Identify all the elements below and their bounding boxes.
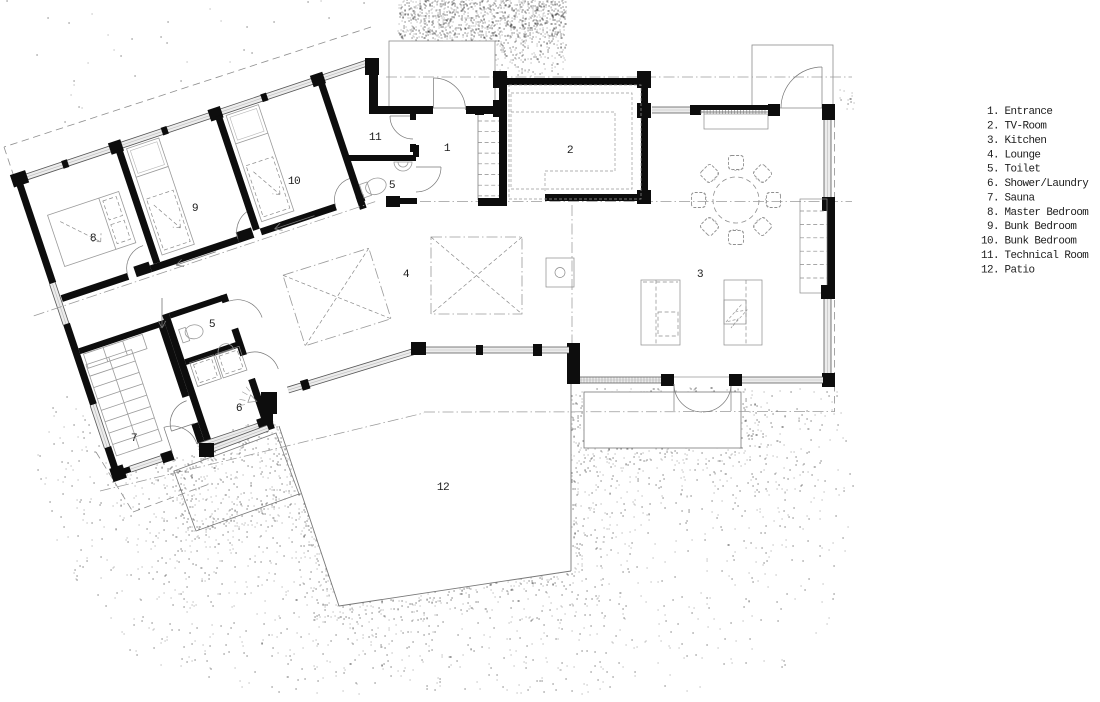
svg-text:Kitchen: Kitchen bbox=[1005, 135, 1047, 147]
svg-text:6: 6 bbox=[236, 403, 242, 415]
svg-text:Master Bedroom: Master Bedroom bbox=[1005, 207, 1089, 219]
svg-text:3: 3 bbox=[697, 269, 703, 281]
svg-text:Entrance: Entrance bbox=[1005, 106, 1053, 118]
svg-text:Sauna: Sauna bbox=[1005, 193, 1036, 205]
svg-text:TV-Room: TV-Room bbox=[1005, 121, 1047, 133]
svg-text:9.: 9. bbox=[987, 221, 999, 233]
svg-text:3.: 3. bbox=[987, 135, 999, 147]
svg-text:11: 11 bbox=[369, 132, 382, 144]
svg-text:9: 9 bbox=[192, 203, 198, 215]
svg-text:5: 5 bbox=[389, 180, 395, 192]
svg-text:Toilet: Toilet bbox=[1005, 164, 1041, 176]
svg-text:12: 12 bbox=[437, 482, 449, 494]
svg-text:7.: 7. bbox=[987, 193, 999, 205]
svg-text:8: 8 bbox=[90, 233, 96, 245]
svg-text:2.: 2. bbox=[987, 121, 999, 133]
svg-text:12.: 12. bbox=[981, 264, 999, 276]
svg-text:1.: 1. bbox=[987, 106, 999, 118]
svg-text:Lounge: Lounge bbox=[1005, 149, 1041, 161]
svg-text:10: 10 bbox=[288, 176, 301, 188]
svg-text:6.: 6. bbox=[987, 178, 999, 190]
svg-text:5.: 5. bbox=[987, 164, 999, 176]
svg-text:4.: 4. bbox=[987, 149, 999, 161]
svg-text:2: 2 bbox=[567, 145, 573, 157]
svg-text:1: 1 bbox=[444, 143, 451, 155]
svg-text:Bunk Bedroom: Bunk Bedroom bbox=[1005, 221, 1077, 233]
svg-text:10.: 10. bbox=[981, 236, 999, 248]
svg-text:11.: 11. bbox=[981, 250, 999, 262]
svg-text:8.: 8. bbox=[987, 207, 999, 219]
svg-text:Patio: Patio bbox=[1005, 264, 1035, 276]
svg-text:Bunk Bedroom: Bunk Bedroom bbox=[1005, 236, 1077, 248]
svg-text:5: 5 bbox=[209, 319, 215, 331]
svg-text:7: 7 bbox=[131, 433, 137, 445]
svg-text:Shower/Laundry: Shower/Laundry bbox=[1005, 178, 1090, 190]
svg-text:4: 4 bbox=[403, 269, 410, 281]
svg-text:Technical Room: Technical Room bbox=[1005, 250, 1089, 262]
